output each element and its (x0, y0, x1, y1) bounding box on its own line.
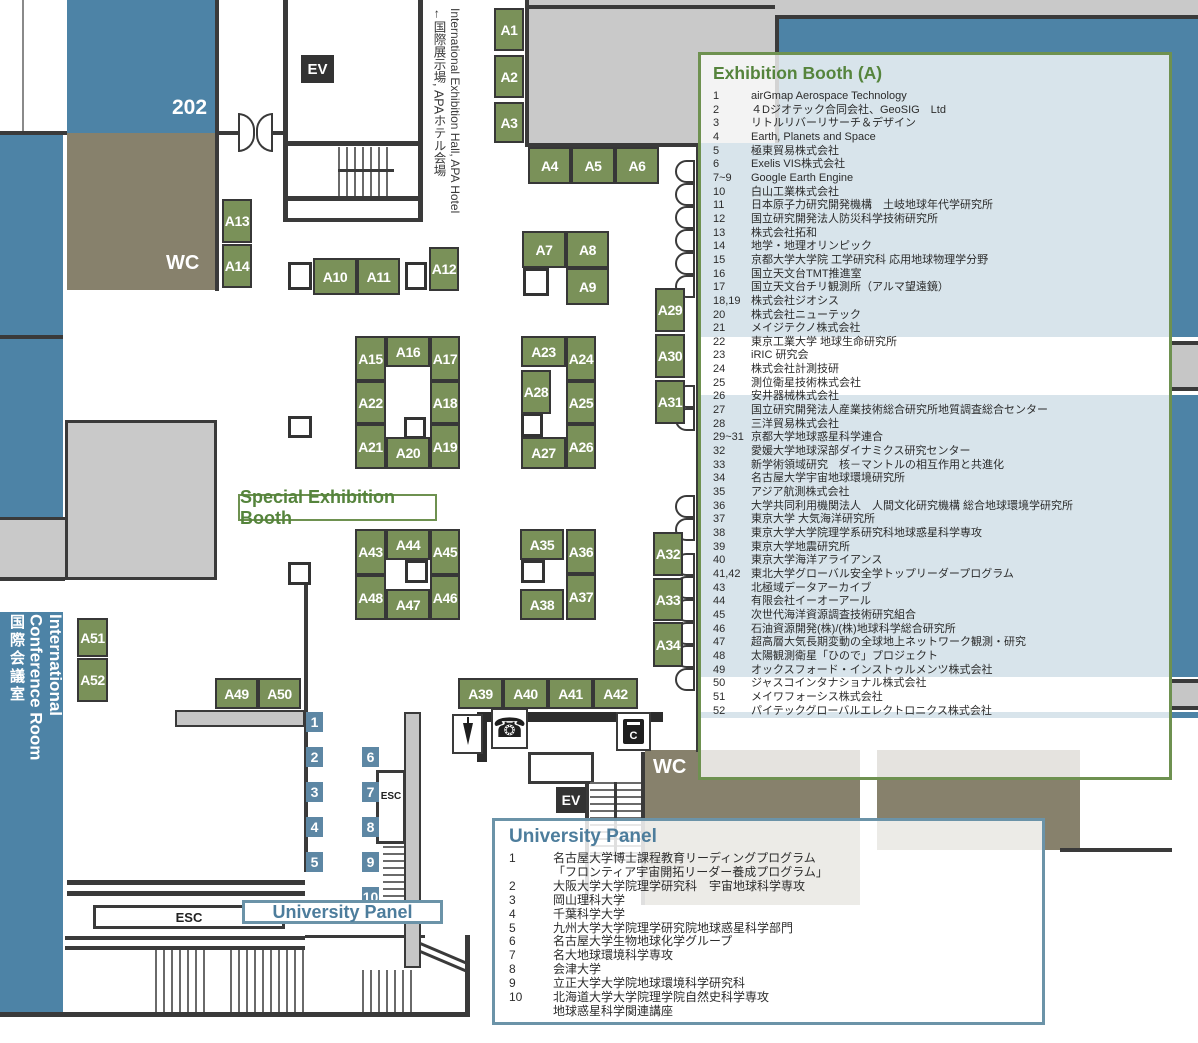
panel-number-cell: 10 (509, 991, 553, 1005)
exhibition-list-item: 27国立研究開発法人産業技術総合研究所地質調査総合センター (713, 404, 1169, 418)
panel-number-cell: 4 (509, 908, 553, 922)
booth-a26: A26 (566, 424, 596, 469)
booth-a43: A43 (355, 529, 386, 575)
booth-number: 3 (713, 117, 751, 131)
booth-exhibitor-name: リトルリバーリサーチ＆デザイン (751, 117, 916, 131)
booth-a11: A11 (357, 258, 400, 295)
exhibition-list-item: 34名古屋大学宇宙地球環境研究所 (713, 472, 1169, 486)
booth-number: 33 (713, 459, 751, 473)
booth-number: 11 (713, 199, 751, 213)
exhibition-list-item: 37東京大学 大気海洋研究所 (713, 513, 1169, 527)
booth-number: 48 (713, 650, 751, 664)
drink-icon (452, 714, 483, 754)
door-icon (256, 113, 273, 152)
booth-a45: A45 (430, 529, 460, 575)
map-square (404, 417, 426, 439)
exhibition-list-item: 21メイジテクノ株式会社 (713, 322, 1169, 336)
booth-number: 17 (713, 281, 751, 295)
special-exhibition-tag: Special Exhibition Booth (238, 494, 437, 521)
booth-a47: A47 (386, 589, 430, 620)
booth-exhibitor-name: 東京大学大学院理学系研究科地球惑星科学専攻 (751, 527, 982, 541)
booth-number: 40 (713, 554, 751, 568)
booth-a37: A37 (566, 574, 596, 620)
booth-exhibitor-name: メイジテクノ株式会社 (751, 322, 860, 336)
booth-exhibitor-name: 次世代海洋資源調査技術研究組合 (751, 609, 916, 623)
door-icon (675, 183, 695, 206)
stairs-icon (383, 846, 405, 904)
booth-a7: A7 (522, 231, 566, 268)
elevator-bottom: EV (556, 787, 586, 813)
wall (1060, 848, 1172, 852)
stairs-icon (362, 970, 418, 1013)
booth-a3: A3 (494, 102, 524, 143)
university-list-item: 地球惑星科学関連講座 (509, 1005, 1042, 1019)
panel-number-9: 9 (362, 852, 379, 872)
cup-glyph (463, 723, 473, 745)
wall (65, 946, 305, 950)
doorway (1170, 679, 1198, 710)
booth-a24: A24 (566, 336, 596, 381)
booth-a20: A20 (386, 437, 430, 469)
panel-number-cell: 5 (509, 922, 553, 936)
university-panel-title: University Panel (509, 826, 1042, 848)
university-list-item: 9立正大学大学院地球環境科学研究科 (509, 977, 1042, 991)
booth-a10: A10 (313, 258, 357, 295)
university-name: 地球惑星科学関連講座 (553, 1005, 673, 1019)
doorway (1170, 341, 1198, 391)
booth-a17: A17 (430, 336, 460, 381)
panel-number-cell: 3 (509, 894, 553, 908)
exhibition-list-item: 16国立天文台TMT推進室 (713, 268, 1169, 282)
booth-a39: A39 (458, 678, 503, 709)
booth-number: 22 (713, 336, 751, 350)
wall (418, 0, 423, 222)
door-icon (675, 160, 695, 183)
booth-a49: A49 (215, 678, 258, 709)
door-icon (675, 495, 695, 518)
booth-exhibitor-name: 株式会社計測技研 (751, 363, 839, 377)
university-name: 立正大学大学院地球環境科学研究科 (553, 977, 745, 991)
booth-number: 38 (713, 527, 751, 541)
booth-a36: A36 (566, 529, 596, 574)
panel-number-cell: 9 (509, 977, 553, 991)
panel-number-1: 1 (306, 712, 323, 732)
exhibition-list-item: 50ジャスコインタナショナル株式会社 (713, 677, 1169, 691)
exhibition-list-item: 46石油資源開発(株)/(株)地球科学総合研究所 (713, 623, 1169, 637)
conference-label-en: International Conference Room (26, 614, 65, 804)
university-name: 名古屋大学博士課程教育リーディングプログラム (553, 852, 816, 866)
university-list-item: 10北海道大学大学院理学院自然史科学専攻 (509, 991, 1042, 1005)
panel-number-cell: 7 (509, 949, 553, 963)
university-list-item: 2大阪大学大学院理学研究科 宇宙地球科学専攻 (509, 880, 1042, 894)
booth-a9: A9 (566, 268, 609, 305)
map-square (521, 413, 543, 437)
wall (0, 335, 63, 339)
booth-number: 7~9 (713, 172, 751, 186)
booth-exhibitor-name: 国立研究開発法人防災科学技術研究所 (751, 213, 938, 227)
door-icon (675, 668, 695, 691)
booth-a33: A33 (653, 578, 683, 621)
stair-landing (338, 169, 394, 172)
booth-exhibitor-name: ジャスコインタナショナル株式会社 (751, 677, 926, 691)
wall (271, 131, 285, 135)
booth-number: 44 (713, 595, 751, 609)
map-square (288, 416, 312, 438)
booth-number: 21 (713, 322, 751, 336)
conference-label-jp: 国際会議室 (7, 614, 26, 804)
exhibition-list-item: 44有限会社イーオーアール (713, 595, 1169, 609)
booth-number: 47 (713, 636, 751, 650)
booth-number: 1 (713, 90, 751, 104)
booth-exhibitor-name: 京都大学大学院 工学研究科 応用地球物理学分野 (751, 254, 988, 268)
booth-exhibitor-name: オックスフォード・インストゥルメンツ株式会社 (751, 664, 992, 678)
exhibition-list-item: 33新学術領域研究 核－マントルの相互作用と共進化 (713, 459, 1169, 473)
booth-exhibitor-name: 東京大学地震研究所 (751, 541, 850, 555)
booth-number: 4 (713, 131, 751, 145)
wall (0, 131, 67, 135)
copier-slot (627, 722, 640, 725)
wall (67, 891, 305, 896)
booth-number: 12 (713, 213, 751, 227)
university-name: 岡山理科大学 (553, 894, 625, 908)
booth-number: 24 (713, 363, 751, 377)
booth-exhibitor-name: 測位衛星技術株式会社 (751, 377, 861, 391)
door-icon (238, 113, 255, 152)
booth-number: 6 (713, 158, 751, 172)
exhibition-list-item: 26安井器械株式会社 (713, 390, 1169, 404)
booth-number: 39 (713, 541, 751, 555)
booth-a12: A12 (429, 247, 459, 291)
booth-exhibitor-name: 愛媛大学地球深部ダイナミクス研究センター (751, 445, 970, 459)
exit-label-en: International Exhibition Hall, APA Hotel (447, 8, 464, 353)
booth-a38: A38 (520, 589, 564, 620)
exhibition-list-item: 25測位衛星技術株式会社 (713, 377, 1169, 391)
booth-exhibitor-name: 三洋貿易株式会社 (751, 418, 839, 432)
floor-plan: 202 WC WC EV ESC (0, 0, 1198, 1043)
exhibition-list-item: 11日本原子力研究開発機構 土岐地球年代学研究所 (713, 199, 1169, 213)
booth-a16: A16 (386, 336, 430, 367)
phone-icon: ☎ (491, 708, 528, 749)
panel-number-cell: 2 (509, 880, 553, 894)
wall (215, 0, 219, 291)
university-list-item: 3岡山理科大学 (509, 894, 1042, 908)
booth-exhibitor-name: 大学共同利用機関法人 人間文化研究機構 総合地球環境学研究所 (751, 500, 1073, 514)
booth-a28: A28 (521, 370, 551, 414)
copier-letter: C (623, 730, 644, 742)
booth-number: 18,19 (713, 295, 751, 309)
booth-number: 23 (713, 349, 751, 363)
exhibition-list-item: 29~31京都大学地球惑星科学連合 (713, 431, 1169, 445)
door-icon (675, 252, 695, 275)
booth-exhibitor-name: 有限会社イーオーアール (751, 595, 871, 609)
booth-exhibitor-name: 石油資源開発(株)/(株)地球科学総合研究所 (751, 623, 956, 637)
exhibition-list-item: 3リトルリバーリサーチ＆デザイン (713, 117, 1169, 131)
exhibition-list-item: 39東京大学地震研究所 (713, 541, 1169, 555)
exhibition-list-item: 17国立天文台チリ観測所（アルマ望遠鏡） (713, 281, 1169, 295)
exhibition-list-item: 15京都大学大学院 工学研究科 応用地球物理学分野 (713, 254, 1169, 268)
booth-a15: A15 (355, 336, 386, 381)
map-square (288, 262, 312, 290)
booth-number: 49 (713, 664, 751, 678)
escalator-mid: ESC (376, 770, 406, 844)
wall (0, 577, 65, 581)
copier-icon: C (616, 712, 651, 751)
exhibition-list-item: 1airGmap Aerospace Technology (713, 90, 1169, 104)
exhibition-list-item: 41,42東北大学グローバル安全学トップリーダープログラム (713, 568, 1169, 582)
left-wall-strip (0, 133, 63, 517)
wall (283, 218, 423, 222)
university-panel: University Panel 1名古屋大学博士課程教育リーディングプログラム… (492, 818, 1045, 1025)
booth-a32: A32 (653, 532, 683, 576)
university-name: 北海道大学大学院理学院自然史科学専攻 (553, 991, 769, 1005)
wc-bottom-label: WC (653, 756, 686, 779)
booth-exhibitor-name: 極東貿易株式会社 (751, 145, 839, 159)
booth-exhibitor-name: 日本原子力研究開発機構 土岐地球年代学研究所 (751, 199, 993, 213)
booth-number: 10 (713, 186, 751, 200)
booth-number: 35 (713, 486, 751, 500)
booth-a35: A35 (520, 529, 564, 560)
booth-exhibitor-name: 超高層大気長期変動の全球地上ネットワーク観測・研究 (751, 636, 1026, 650)
panel-number-cell (509, 866, 553, 880)
map-square (288, 562, 311, 585)
booth-exhibitor-name: Earth, Planets and Space (751, 131, 876, 145)
booth-exhibitor-name: 東北大学グローバル安全学トップリーダープログラム (751, 568, 1014, 582)
panel-number-cell (509, 1005, 553, 1019)
exhibition-list-item: 24株式会社計測技研 (713, 363, 1169, 377)
booth-number: 2 (713, 104, 751, 118)
booth-a50: A50 (258, 678, 301, 709)
exhibition-booth-list: 1airGmap Aerospace Technology2４Dジオテック合同会… (713, 90, 1169, 718)
booth-exhibitor-name: 東京工業大学 地球生命研究所 (751, 336, 897, 350)
booth-exhibitor-name: 東京大学 大気海洋研究所 (751, 513, 875, 527)
gray-block (65, 420, 217, 580)
wall (283, 196, 423, 201)
map-square (521, 560, 545, 583)
university-panel-tag: University Panel (242, 900, 443, 924)
booth-a4: A4 (528, 147, 571, 184)
wc-top-label: WC (166, 252, 199, 275)
booth-a27: A27 (521, 437, 566, 469)
exhibition-list-item: 14地学・地理オリンピック (713, 240, 1169, 254)
booth-number: 43 (713, 582, 751, 596)
exhibition-list-item: 43北極域データアーカイブ (713, 582, 1169, 596)
panel-number-3: 3 (306, 782, 323, 802)
booth-a42: A42 (593, 678, 638, 709)
pillar (404, 712, 421, 968)
booth-exhibitor-name: アジア航測株式会社 (751, 486, 850, 500)
exhibition-list-item: 32愛媛大学地球深部ダイナミクス研究センター (713, 445, 1169, 459)
wall (67, 880, 305, 885)
booth-number: 20 (713, 309, 751, 323)
wall (283, 0, 288, 222)
booth-exhibitor-name: Google Earth Engine (751, 172, 853, 186)
booth-a51: A51 (77, 618, 108, 657)
booth-number: 46 (713, 623, 751, 637)
booth-a34: A34 (653, 622, 683, 667)
elevator-top: EV (301, 55, 334, 83)
exhibition-list-item: 40東京大学海洋アライアンス (713, 554, 1169, 568)
booth-exhibitor-name: 東京大学海洋アライアンス (751, 554, 882, 568)
booth-number: 15 (713, 254, 751, 268)
university-name: 「フロンティア宇宙開拓リーダー養成プログラム」 (553, 866, 828, 880)
exhibition-list-item: 49オックスフォード・インストゥルメンツ株式会社 (713, 664, 1169, 678)
wall (283, 141, 423, 146)
booth-number: 14 (713, 240, 751, 254)
exhibition-list-item: 5極東貿易株式会社 (713, 145, 1169, 159)
booth-a23: A23 (521, 336, 566, 367)
booth-a46: A46 (430, 575, 460, 620)
exhibition-booth-panel: Exhibition Booth (A) 1airGmap Aerospace … (698, 52, 1172, 780)
booth-exhibitor-name: メイワフォーシス株式会社 (751, 691, 883, 705)
exhibition-list-item: 4Earth, Planets and Space (713, 131, 1169, 145)
exhibition-list-item: 45次世代海洋資源調査技術研究組合 (713, 609, 1169, 623)
exhibition-list-item: 36大学共同利用機関法人 人間文化研究機構 総合地球環境学研究所 (713, 500, 1169, 514)
exhibition-list-item: 28三洋貿易株式会社 (713, 418, 1169, 432)
booth-exhibitor-name: 太陽観測衛星「ひので」プロジェクト (751, 650, 938, 664)
exhibition-list-item: 48太陽観測衛星「ひので」プロジェクト (713, 650, 1169, 664)
panel-number-7: 7 (362, 782, 379, 802)
booth-a30: A30 (655, 334, 685, 378)
booth-a52: A52 (77, 658, 108, 702)
exhibition-panel-title: Exhibition Booth (A) (713, 63, 1169, 84)
booth-number: 28 (713, 418, 751, 432)
map-square (405, 262, 427, 290)
university-name: 千葉科学大学 (553, 908, 625, 922)
booth-exhibitor-name: 株式会社ニューテック (751, 309, 861, 323)
booth-a13: A13 (222, 199, 252, 243)
booth-a5: A5 (571, 147, 615, 184)
panel-number-6: 6 (362, 747, 379, 767)
university-name: 大阪大学大学院理学研究科 宇宙地球科学専攻 (553, 880, 805, 894)
panel-number-5: 5 (306, 852, 323, 872)
wall (465, 935, 470, 1013)
exhibition-list-item: 6Exelis VIS株式会社 (713, 158, 1169, 172)
booth-number: 13 (713, 227, 751, 241)
panel-number-cell: 1 (509, 852, 553, 866)
gray-block-ext (0, 517, 65, 580)
booth-a19: A19 (430, 424, 460, 469)
exhibition-list-item: 22東京工業大学 地球生命研究所 (713, 336, 1169, 350)
copier-glyph: C (623, 719, 644, 744)
booth-exhibitor-name: 地学・地理オリンピック (751, 240, 872, 254)
exhibition-list-item: 38東京大学大学院理学系研究科地球惑星科学専攻 (713, 527, 1169, 541)
stage-bar (175, 710, 305, 727)
booth-number: 5 (713, 145, 751, 159)
booth-number: 26 (713, 390, 751, 404)
booth-a48: A48 (355, 575, 386, 620)
wall (525, 5, 775, 9)
booth-exhibitor-name: 新学術領域研究 核－マントルの相互作用と共進化 (751, 459, 1004, 473)
university-list-item: 4千葉科学大学 (509, 908, 1042, 922)
booth-a6: A6 (615, 147, 659, 184)
booth-a44: A44 (386, 529, 430, 560)
exhibition-list-item: 2４Dジオテック合同会社、GeoSIG Ltd (713, 104, 1169, 118)
room-202-label: 202 (172, 96, 207, 120)
booth-number: 16 (713, 268, 751, 282)
wall (22, 0, 24, 131)
booth-exhibitor-name: 名古屋大学宇宙地球環境研究所 (751, 472, 905, 486)
exhibition-list-item: 12国立研究開発法人防災科学技術研究所 (713, 213, 1169, 227)
booth-number: 25 (713, 377, 751, 391)
booth-exhibitor-name: 株式会社拓和 (751, 227, 817, 241)
booth-a21: A21 (355, 424, 386, 469)
wall (219, 131, 239, 135)
booth-number: 51 (713, 691, 751, 705)
booth-number: 27 (713, 404, 751, 418)
panel-number-2: 2 (306, 747, 323, 767)
booth-a31: A31 (655, 380, 685, 424)
booth-exhibitor-name: 京都大学地球惑星科学連合 (751, 431, 883, 445)
exhibition-list-item: 23iRIC 研究会 (713, 349, 1169, 363)
booth-a2: A2 (494, 55, 524, 98)
booth-exhibitor-name: 株式会社ジオシス (751, 295, 839, 309)
panel-number-cell: 6 (509, 935, 553, 949)
booth-exhibitor-name: airGmap Aerospace Technology (751, 90, 907, 104)
door-icon (675, 229, 695, 252)
booth-a41: A41 (548, 678, 593, 709)
stairs-icon (155, 950, 207, 1012)
booth-exhibitor-name: 安井器械株式会社 (751, 390, 839, 404)
booth-number: 50 (713, 677, 751, 691)
exhibition-list-item: 52パイテックグローバルエレクトロニクス株式会社 (713, 705, 1169, 719)
booth-a1: A1 (494, 8, 524, 51)
exhibition-list-item: 10白山工業株式会社 (713, 186, 1169, 200)
phone-glyph: ☎ (493, 715, 527, 742)
exhibition-list-item: 13株式会社拓和 (713, 227, 1169, 241)
map-square (523, 268, 549, 296)
booth-number: 32 (713, 445, 751, 459)
booth-a25: A25 (566, 381, 596, 424)
exhibition-list-item: 35アジア航測株式会社 (713, 486, 1169, 500)
panel-number-8: 8 (362, 817, 379, 837)
escalator-bottom-label: ESC (176, 910, 203, 925)
booth-a40: A40 (503, 678, 548, 709)
university-panel-list: 1名古屋大学博士課程教育リーディングプログラム「フロンティア宇宙開拓リーダー養成… (509, 852, 1042, 1019)
university-panel-tag-label: University Panel (272, 902, 412, 923)
exit-label-jp: ←国際展示場, APAホテル会場 (430, 8, 447, 353)
booth-exhibitor-name: iRIC 研究会 (751, 349, 808, 363)
booth-exhibitor-name: 国立天文台チリ観測所（アルマ望遠鏡） (751, 281, 949, 295)
booth-exhibitor-name: ４Dジオテック合同会社、GeoSIG Ltd (751, 104, 946, 118)
wall (0, 1012, 470, 1017)
booth-number: 29~31 (713, 431, 751, 445)
map-square (405, 560, 428, 583)
exit-direction-label: International Exhibition Hall, APA Hotel… (430, 8, 463, 353)
exhibition-list-item: 18,19株式会社ジオシス (713, 295, 1169, 309)
panel-number-4: 4 (306, 817, 323, 837)
booth-exhibitor-name: 白山工業株式会社 (751, 186, 839, 200)
booth-number: 45 (713, 609, 751, 623)
booth-a8: A8 (566, 231, 609, 268)
booth-exhibitor-name: 国立天文台TMT推進室 (751, 268, 862, 282)
booth-a18: A18 (430, 381, 460, 424)
door-icon (675, 206, 695, 229)
university-list-item: 「フロンティア宇宙開拓リーダー養成プログラム」 (509, 866, 1042, 880)
booth-exhibitor-name: パイテックグローバルエレクトロニクス株式会社 (751, 705, 992, 719)
escalator-mid-label: ESC (381, 791, 402, 802)
booth-a29: A29 (655, 288, 685, 332)
booth-number: 36 (713, 500, 751, 514)
panel-number-cell: 8 (509, 963, 553, 977)
booth-number: 34 (713, 472, 751, 486)
wall (65, 936, 305, 940)
booth-a22: A22 (355, 381, 386, 424)
stairs-icon (230, 950, 305, 1012)
special-exhibition-label: Special Exhibition Booth (240, 487, 435, 529)
booth-number: 52 (713, 705, 751, 719)
booth-exhibitor-name: 北極域データアーカイブ (751, 582, 871, 596)
booth-exhibitor-name: 国立研究開発法人産業技術総合研究所地質調査総合センター (751, 404, 1048, 418)
